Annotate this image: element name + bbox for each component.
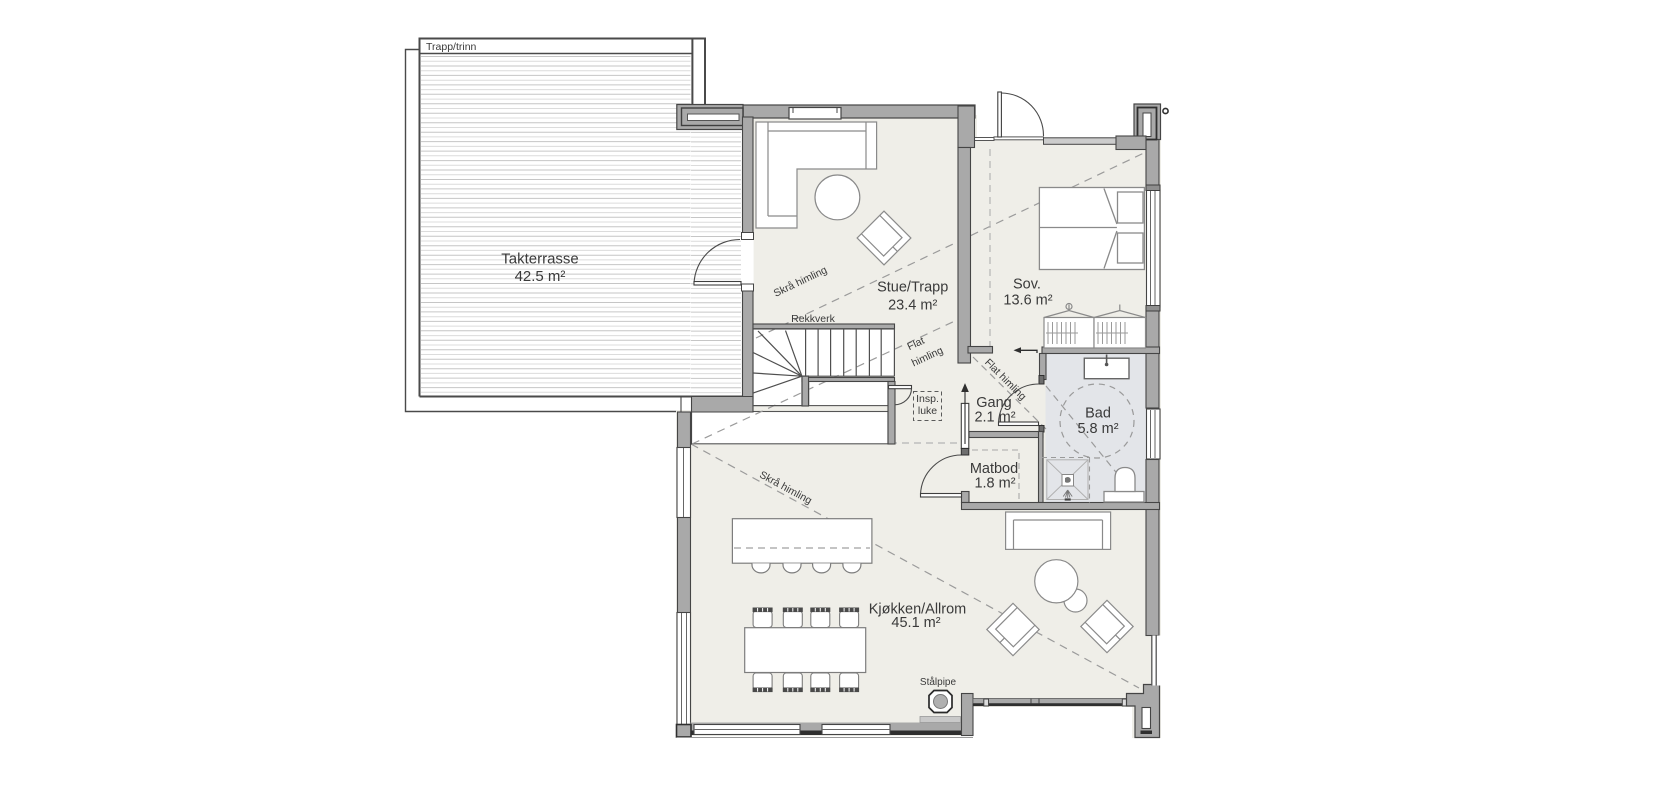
svg-text:23.4 m²: 23.4 m² <box>888 298 937 314</box>
svg-text:1.8 m²: 1.8 m² <box>974 476 1015 492</box>
svg-text:42.5 m²: 42.5 m² <box>515 268 566 285</box>
svg-text:luke: luke <box>918 405 937 417</box>
svg-text:13.6 m²: 13.6 m² <box>1003 293 1052 309</box>
svg-text:45.1 m²: 45.1 m² <box>891 615 940 631</box>
svg-text:2.1 m²: 2.1 m² <box>974 410 1015 426</box>
svg-text:Bad: Bad <box>1085 406 1111 422</box>
svg-text:Sov.: Sov. <box>1013 277 1041 293</box>
svg-text:Takterrasse: Takterrasse <box>501 251 579 268</box>
svg-text:Insp.: Insp. <box>916 393 939 405</box>
svg-text:5.8 m²: 5.8 m² <box>1077 421 1118 437</box>
svg-text:Stålpipe: Stålpipe <box>920 676 957 688</box>
svg-text:Trapp/trinn: Trapp/trinn <box>426 41 477 53</box>
svg-text:Stue/Trapp: Stue/Trapp <box>877 280 948 296</box>
svg-text:Rekkverk: Rekkverk <box>791 313 836 325</box>
